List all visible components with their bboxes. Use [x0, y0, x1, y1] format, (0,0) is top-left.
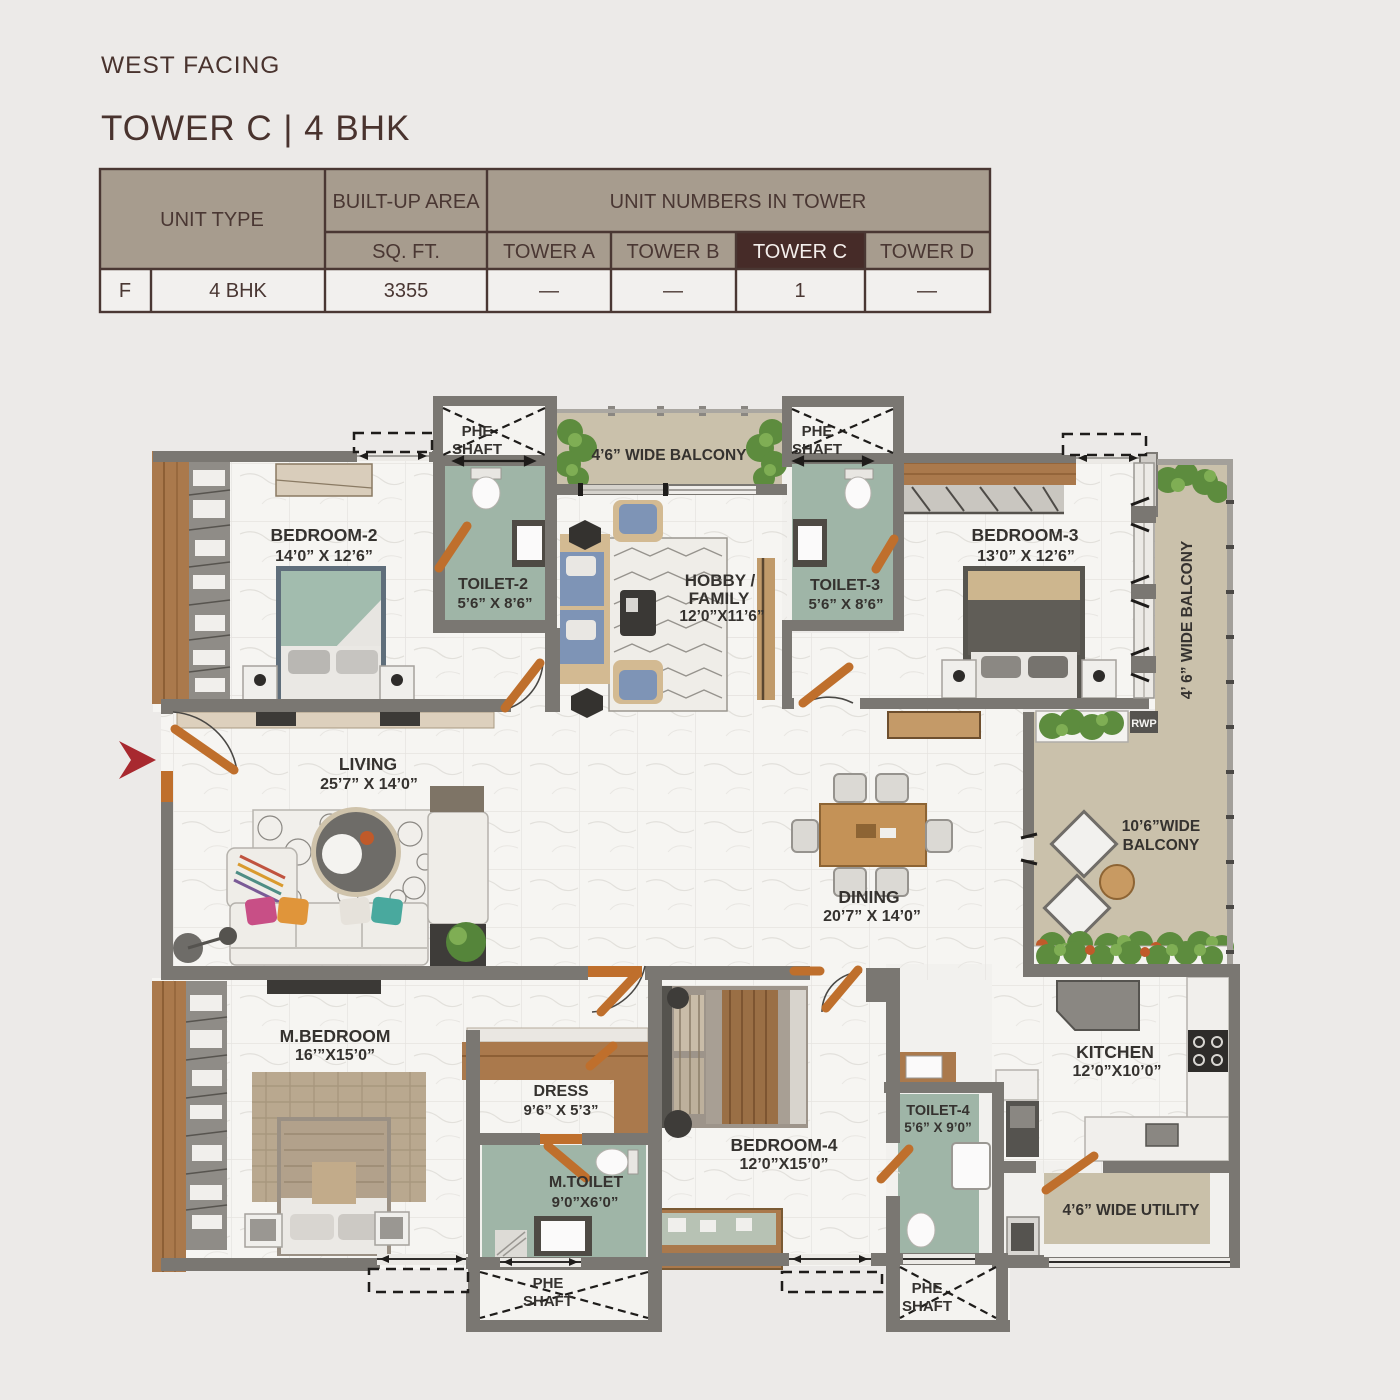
svg-text:UNIT NUMBERS IN TOWER: UNIT NUMBERS IN TOWER [610, 191, 867, 213]
svg-text:16’”X15’0”: 16’”X15’0” [295, 1047, 375, 1064]
svg-text:DINING: DINING [838, 887, 899, 907]
svg-text:—: — [917, 280, 937, 302]
svg-text:9’6” X 5’3”: 9’6” X 5’3” [523, 1102, 598, 1119]
svg-text:5’6” X 8’6”: 5’6” X 8’6” [457, 595, 532, 612]
svg-text:13’0” X 12’6”: 13’0” X 12’6” [977, 548, 1075, 565]
svg-text:10’6”WIDE: 10’6”WIDE [1122, 818, 1200, 835]
svg-text:M.TOILET: M.TOILET [549, 1174, 624, 1191]
svg-text:—: — [539, 280, 559, 302]
svg-text:BEDROOM-4: BEDROOM-4 [731, 1135, 838, 1155]
svg-text:9’0”X6’0”: 9’0”X6’0” [552, 1194, 619, 1211]
svg-text:TOILET-3: TOILET-3 [810, 577, 880, 594]
svg-text:SHAFT: SHAFT [452, 441, 502, 458]
svg-text:BALCONY: BALCONY [1123, 837, 1200, 854]
svg-text:4’ 6” WIDE BALCONY: 4’ 6” WIDE BALCONY [1179, 540, 1196, 699]
svg-text:TOWER C: TOWER C [753, 241, 847, 263]
svg-text:HOBBY /: HOBBY / [685, 571, 756, 590]
svg-text:20’7” X 14’0”: 20’7” X 14’0” [823, 908, 921, 925]
svg-text:LIVING: LIVING [339, 754, 397, 774]
svg-text:4’6” WIDE UTILITY: 4’6” WIDE UTILITY [1063, 1202, 1201, 1219]
svg-text:TOWER B: TOWER B [627, 241, 720, 263]
svg-text:SHAFT: SHAFT [792, 441, 842, 458]
svg-text:25’7” X 14’0”: 25’7” X 14’0” [320, 776, 418, 793]
svg-text:RWP: RWP [1131, 718, 1156, 730]
svg-text:SHAFT: SHAFT [902, 1298, 952, 1315]
svg-text:5’6” X 8’6”: 5’6” X 8’6” [808, 596, 883, 613]
svg-text:PHE: PHE [802, 423, 833, 440]
svg-text:14’0” X 12’6”: 14’0” X 12’6” [275, 548, 373, 565]
svg-text:3355: 3355 [384, 280, 429, 302]
svg-text:BEDROOM-3: BEDROOM-3 [972, 525, 1079, 545]
svg-text:SHAFT: SHAFT [523, 1293, 573, 1310]
svg-text:12’0”X15’0”: 12’0”X15’0” [740, 1156, 829, 1173]
svg-text:BUILT-UP AREA: BUILT-UP AREA [332, 191, 480, 213]
svg-text:M.BEDROOM: M.BEDROOM [280, 1026, 391, 1046]
svg-text:UNIT TYPE: UNIT TYPE [160, 209, 264, 231]
svg-text:PHE: PHE [462, 423, 493, 440]
svg-text:TOWER C | 4 BHK: TOWER C | 4 BHK [101, 109, 410, 148]
svg-text:TOWER A: TOWER A [503, 241, 596, 263]
svg-text:—: — [663, 280, 683, 302]
svg-text:F: F [119, 280, 131, 302]
svg-text:12’0”X10’0”: 12’0”X10’0” [1073, 1063, 1162, 1080]
svg-text:5’6” X 9’0”: 5’6” X 9’0” [904, 1120, 972, 1135]
svg-text:KITCHEN: KITCHEN [1076, 1042, 1154, 1062]
svg-text:12’0”X11’6”: 12’0”X11’6” [679, 608, 764, 625]
svg-text:PHE: PHE [912, 1280, 943, 1297]
svg-text:TOWER D: TOWER D [880, 241, 974, 263]
svg-text:1: 1 [794, 280, 805, 302]
svg-text:4 BHK: 4 BHK [209, 280, 267, 302]
svg-text:BEDROOM-2: BEDROOM-2 [271, 525, 378, 545]
svg-text:WEST FACING: WEST FACING [101, 52, 280, 79]
svg-text:4’6” WIDE BALCONY: 4’6” WIDE BALCONY [591, 447, 747, 464]
svg-text:DRESS: DRESS [533, 1083, 588, 1100]
svg-text:TOILET-4: TOILET-4 [906, 1103, 969, 1119]
svg-text:FAMILY: FAMILY [689, 589, 750, 608]
svg-text:PHE: PHE [533, 1275, 564, 1292]
svg-text:TOILET-2: TOILET-2 [458, 576, 528, 593]
svg-text:SQ. FT.: SQ. FT. [372, 241, 440, 263]
